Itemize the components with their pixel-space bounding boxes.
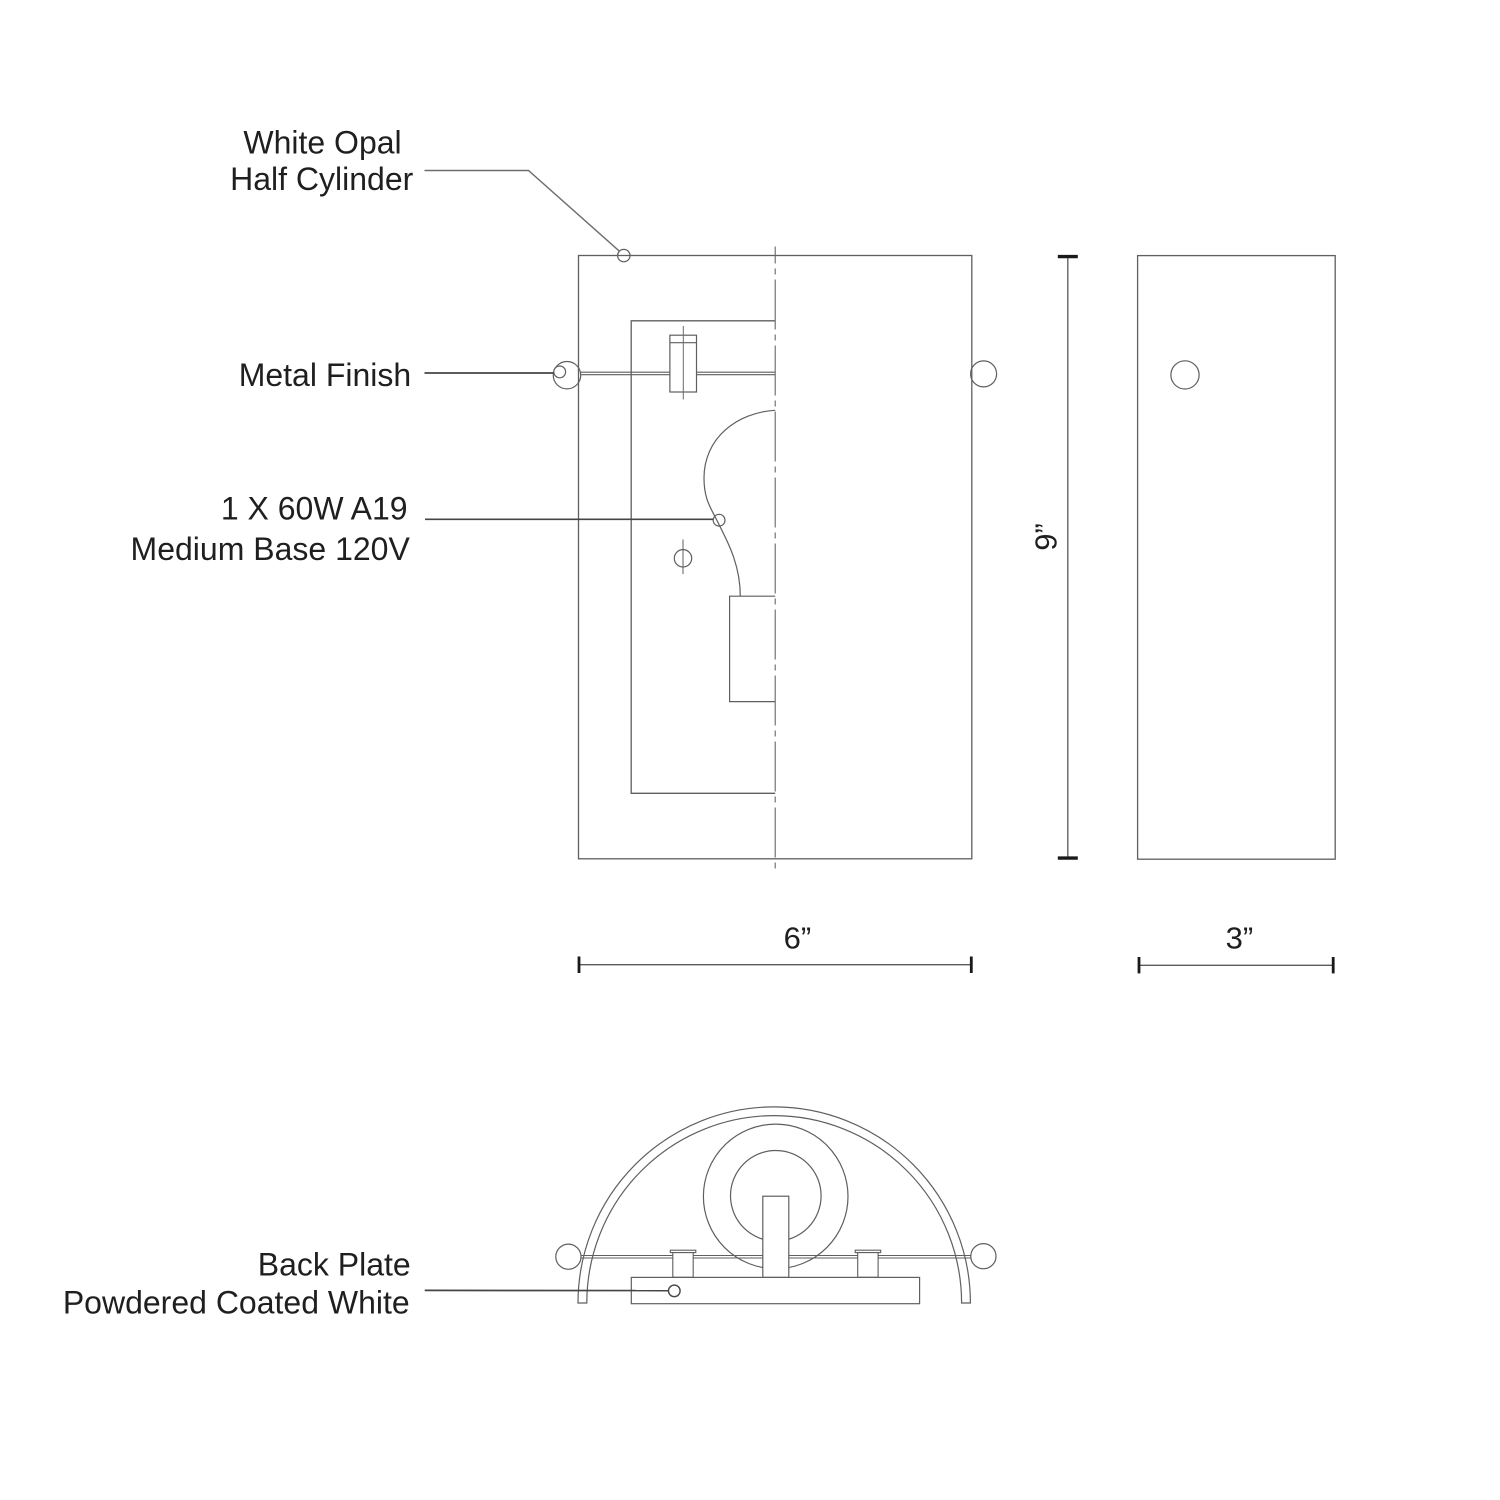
svg-text:Half Cylinder: Half Cylinder (230, 161, 414, 197)
svg-text:Metal Finish: Metal Finish (239, 357, 412, 393)
svg-text:3”: 3” (1226, 921, 1254, 956)
svg-text:1 X 60W A19: 1 X 60W A19 (221, 491, 408, 527)
svg-text:9”: 9” (1029, 523, 1064, 551)
svg-text:White Opal: White Opal (243, 124, 401, 160)
svg-text:Medium Base 120V: Medium Base 120V (131, 531, 411, 567)
svg-text:Powdered Coated White: Powdered Coated White (63, 1285, 410, 1321)
svg-text:Back Plate: Back Plate (258, 1247, 411, 1283)
svg-text:6”: 6” (784, 921, 812, 956)
